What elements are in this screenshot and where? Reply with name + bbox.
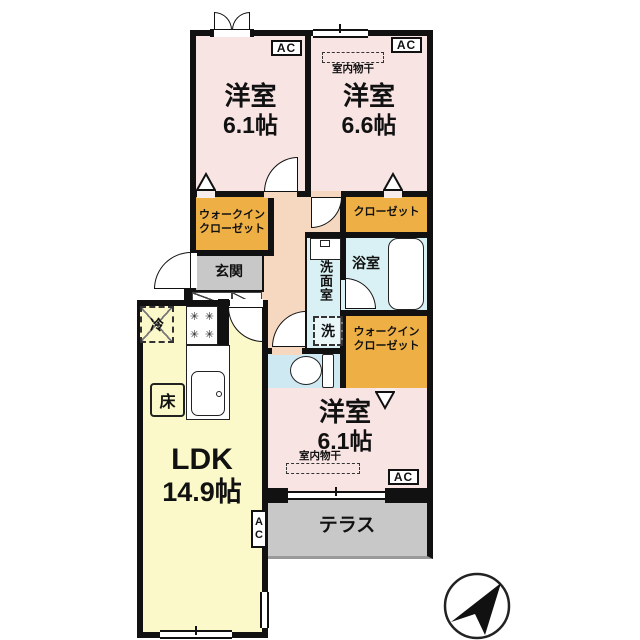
compass-icon [437, 568, 517, 640]
room-name: LDK [171, 443, 233, 478]
bedroom-top-right-label: 洋室 6.6帖 [311, 70, 427, 150]
window-top-right-tick [339, 24, 341, 33]
door-gap-toilet [272, 348, 302, 355]
drying-label-bottom: 室内物干 [278, 449, 362, 462]
room-size: 6.1帖 [223, 112, 278, 138]
wic-line1: ウォークイン [199, 209, 265, 223]
stove-burner-icon: ✳ [205, 310, 214, 323]
floor-heating-label: 床 [159, 388, 175, 412]
ac-text: AC [277, 41, 296, 55]
ac-unit-top-left: AC [271, 40, 302, 56]
door-triangle-wic-top [196, 172, 216, 192]
washroom-text: 洗面室 [318, 260, 333, 302]
window-ldk-bottom-tick [195, 626, 197, 635]
ac-text: AC [397, 38, 416, 52]
window-ldk-right [260, 592, 269, 628]
ac-text: AC [253, 516, 265, 542]
stove: ✳✳✳✳ [186, 306, 218, 345]
room-name: 洋室 [343, 82, 395, 112]
toilet-tank [322, 354, 334, 388]
room-name: 洋室 [224, 82, 276, 112]
wic-top-label: ウォークイン クローゼット [196, 199, 268, 247]
door-gap-top-left [264, 191, 297, 198]
window-casement-right-sash [232, 12, 250, 30]
stove-burner-icon: ✳ [190, 310, 199, 323]
window-terrace-tick [335, 487, 337, 496]
terrace-window-block-left [262, 488, 288, 503]
ac-unit-ldk: AC [251, 510, 267, 548]
terrace-window-block-right [385, 488, 428, 503]
floor-heating-box: 床 [150, 383, 185, 417]
refrigerator-space: 冷 [140, 306, 174, 343]
toilet-bowl [290, 356, 322, 385]
window-casement-stub-left [210, 29, 214, 37]
entrance-text: 玄関 [215, 261, 243, 281]
drying-rail-bottom [286, 463, 360, 474]
terrace-text: テラス [319, 510, 376, 537]
bath-text: 浴室 [352, 253, 380, 273]
kitchen-faucet [216, 391, 222, 397]
wic-line1: ウォークイン [354, 326, 420, 340]
ac-text: AC [394, 470, 413, 484]
door-gap-wic-top [197, 191, 215, 198]
washer-label: 洗 [321, 321, 335, 341]
entrance-label: 玄関 [200, 258, 258, 284]
bathtub [388, 238, 424, 310]
ac-unit-top-right: AC [391, 37, 422, 53]
bedroom-bottom-label: 洋室 6.1帖 [270, 396, 420, 456]
wic-right-label: ウォークイン クローゼット [346, 318, 427, 362]
drying-label-top-right: 室内物干 [311, 61, 395, 75]
ldk-label: LDK 14.9帖 [147, 438, 257, 513]
wic-line2: クローゼット [199, 223, 265, 237]
washroom-label: 洗面室 [315, 260, 335, 324]
drying-text: 室内物干 [332, 61, 374, 76]
bathroom-label: 浴室 [344, 254, 388, 272]
wall-stub-entrance [184, 286, 192, 306]
floor-plan: ✳✳✳✳ 洗 冷 床 洋室 6.1帖 洋室 6.6帖 洋室 6.1帖 LDK 1… [0, 0, 640, 640]
room-name: 洋室 [319, 398, 371, 428]
stove-burner-icon: ✳ [190, 328, 199, 341]
window-casement-gap [210, 29, 254, 37]
window-casement-stub-right [250, 29, 254, 37]
closet-label: クローゼット [346, 199, 427, 227]
refrigerator-label: 冷 [150, 315, 164, 335]
door-gap-closet [384, 191, 402, 198]
closet-text: クローゼット [354, 206, 420, 220]
terrace-label: テラス [292, 510, 402, 536]
stove-burner-icon: ✳ [205, 328, 214, 341]
ac-unit-bottom: AC [388, 469, 419, 485]
door-arc-entrance [154, 252, 191, 289]
door-gap-ldk [230, 299, 263, 307]
wic-line2: クローゼット [354, 340, 420, 354]
vanity-faucet [320, 240, 330, 247]
bedroom-top-left-label: 洋室 6.1帖 [196, 70, 305, 150]
window-casement-left-sash [214, 12, 232, 30]
door-triangle-closet [383, 172, 403, 192]
room-size: 14.9帖 [162, 477, 242, 508]
drying-text: 室内物干 [299, 448, 341, 463]
room-size: 6.6帖 [342, 112, 397, 138]
